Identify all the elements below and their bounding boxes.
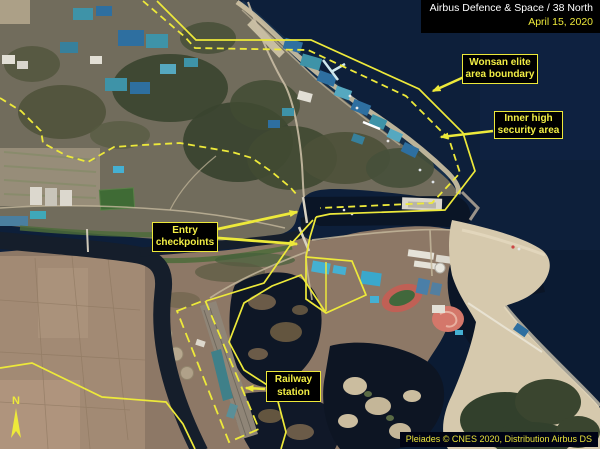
label-line: Inner high: [504, 113, 552, 126]
north-arrow-icon: [6, 407, 26, 441]
inner-security-dashed-line-west: [0, 98, 297, 195]
label-line: Entry: [172, 225, 198, 238]
railway-station-arrow: [246, 388, 265, 389]
image-date: April 15, 2020: [430, 16, 593, 30]
southwest-boundary-line: [0, 363, 195, 449]
label-line: security area: [498, 125, 560, 138]
label-railway-station: Railway station: [266, 371, 321, 402]
boundary-bridge-to-railway-line: [206, 220, 313, 301]
label-line: Wonsan elite: [469, 57, 531, 70]
elite-boundary-solid-line: [157, 1, 475, 217]
label-inner-high-security-area: Inner high security area: [494, 111, 563, 139]
satellite-image: Airbus Defence & Space / 38 North April …: [0, 0, 600, 449]
wonsan-boundary-arrow: [433, 77, 464, 91]
north-arrow: N: [6, 396, 26, 444]
entry-checkpoint-arrow-lower: [218, 238, 297, 244]
attribution-text: Pleiades © CNES 2020, Distribution Airbu…: [406, 434, 592, 444]
label-entry-checkpoints: Entry checkpoints: [152, 222, 218, 252]
image-credit-header: Airbus Defence & Space / 38 North April …: [421, 0, 600, 33]
inner-security-arrow: [441, 131, 493, 137]
pond-enclosure-line: [229, 275, 326, 449]
pool-enclosure-line: [306, 257, 366, 313]
label-line: Railway: [275, 374, 312, 387]
inner-security-dashed-line: [143, 1, 460, 208]
attribution-bar: Pleiades © CNES 2020, Distribution Airbu…: [400, 432, 598, 447]
label-wonsan-elite-area-boundary: Wonsan elite area boundary: [462, 54, 538, 84]
label-line: station: [277, 387, 310, 400]
north-arrow-label: N: [12, 395, 20, 407]
label-line: checkpoints: [156, 237, 214, 250]
credit-line: Airbus Defence & Space / 38 North: [430, 2, 593, 16]
entry-checkpoint-arrow-upper: [218, 212, 297, 229]
label-line: area boundary: [466, 69, 535, 82]
